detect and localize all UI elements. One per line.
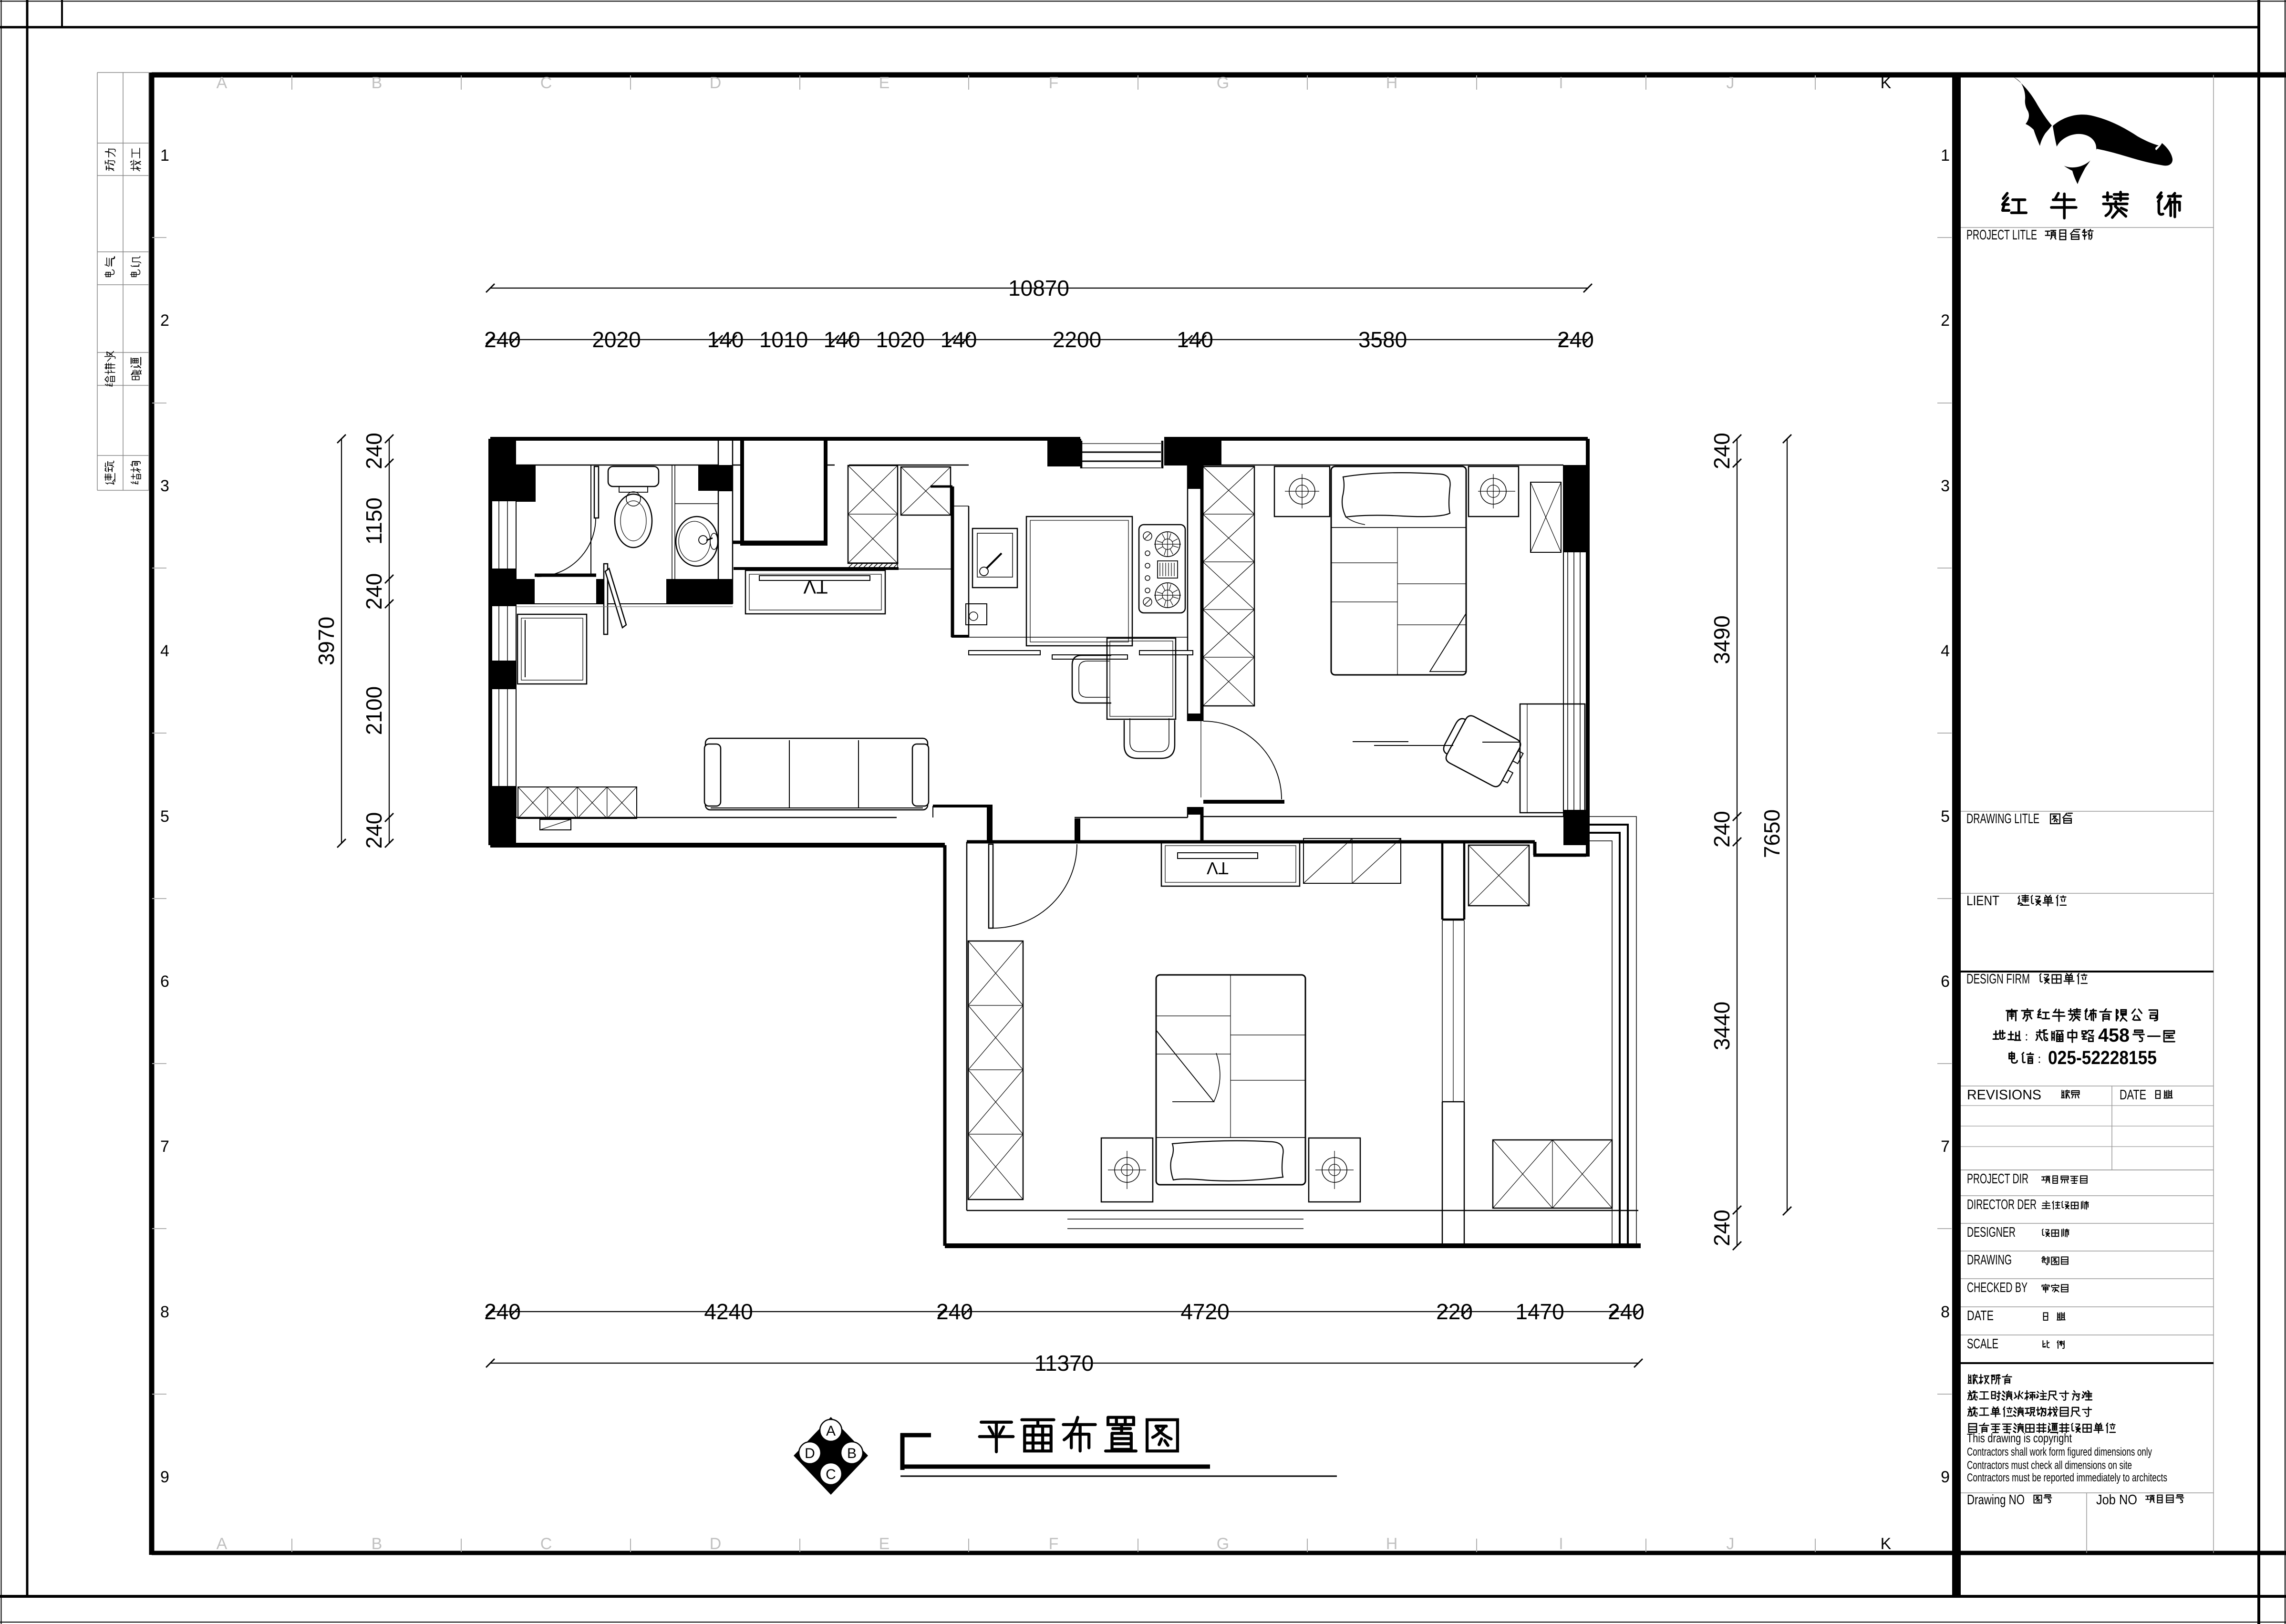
- svg-text:8: 8: [1941, 1303, 1950, 1321]
- svg-text:H: H: [1386, 74, 1398, 92]
- svg-text:A: A: [217, 1535, 228, 1553]
- svg-text:3490: 3490: [1709, 615, 1734, 664]
- svg-text:This drawing is copyright: This drawing is copyright: [1967, 1431, 2072, 1445]
- svg-text:B: B: [372, 1535, 383, 1553]
- svg-text:3: 3: [1941, 477, 1950, 495]
- svg-text:J: J: [1727, 1535, 1735, 1553]
- svg-text:1470: 1470: [1515, 1299, 1564, 1324]
- svg-text:3970: 3970: [314, 617, 339, 665]
- svg-text:7: 7: [1941, 1138, 1950, 1156]
- svg-text:6: 6: [160, 972, 169, 991]
- svg-text:F: F: [1049, 74, 1059, 92]
- svg-text:7: 7: [160, 1138, 169, 1156]
- svg-text:CHECKED BY: CHECKED BY: [1967, 1280, 2027, 1295]
- svg-text:5: 5: [1941, 807, 1950, 826]
- svg-text:SCALE: SCALE: [1967, 1336, 1998, 1352]
- svg-text:240: 240: [362, 433, 386, 469]
- svg-text:B: B: [847, 1446, 857, 1461]
- svg-text:2: 2: [160, 311, 169, 330]
- svg-text:2200: 2200: [1053, 327, 1101, 352]
- svg-text:240: 240: [484, 327, 521, 352]
- svg-text:D: D: [710, 74, 722, 92]
- svg-text:1010: 1010: [759, 327, 808, 352]
- svg-text:240: 240: [362, 573, 386, 610]
- svg-text:J: J: [1727, 74, 1735, 92]
- svg-text:G: G: [1217, 74, 1229, 92]
- svg-text:I: I: [1559, 74, 1563, 92]
- svg-text:DATE: DATE: [1967, 1308, 1994, 1324]
- svg-text:H: H: [1386, 1535, 1398, 1553]
- svg-text:F: F: [1049, 1535, 1059, 1553]
- svg-text:G: G: [1217, 1535, 1229, 1553]
- svg-text:Job NO: Job NO: [2096, 1492, 2137, 1508]
- svg-text:240: 240: [484, 1299, 521, 1324]
- svg-text:240: 240: [936, 1299, 973, 1324]
- svg-text:D: D: [805, 1446, 815, 1461]
- svg-text:DRAWING: DRAWING: [1967, 1252, 2012, 1268]
- svg-text:5: 5: [160, 807, 169, 826]
- svg-text:A: A: [217, 74, 228, 92]
- svg-text:LIENT: LIENT: [1966, 893, 1999, 909]
- svg-text:140: 140: [941, 327, 977, 352]
- svg-text:DATE: DATE: [2120, 1087, 2146, 1103]
- svg-text:B: B: [372, 74, 383, 92]
- svg-text:4: 4: [1941, 642, 1950, 660]
- svg-text:7650: 7650: [1759, 809, 1784, 858]
- svg-text:Contractors must be reported i: Contractors must be reported immediately…: [1967, 1471, 2167, 1484]
- svg-text:Contractors must check all dim: Contractors must check all dimensions on…: [1967, 1459, 2132, 1472]
- svg-text:D: D: [710, 1535, 722, 1553]
- svg-text:025-52228155: 025-52228155: [2048, 1047, 2157, 1068]
- svg-text:140: 140: [707, 327, 744, 352]
- svg-text:A: A: [826, 1423, 836, 1439]
- svg-text:E: E: [879, 1535, 890, 1553]
- svg-text:TV: TV: [803, 576, 828, 597]
- svg-text:9: 9: [1941, 1468, 1950, 1486]
- svg-text:11370: 11370: [1034, 1351, 1094, 1376]
- svg-text:DIRECTOR DER: DIRECTOR DER: [1967, 1197, 2037, 1212]
- svg-text:8: 8: [160, 1303, 169, 1321]
- svg-text:240: 240: [362, 812, 386, 849]
- svg-text:C: C: [826, 1467, 836, 1482]
- svg-text:DESIGN FIRM: DESIGN FIRM: [1966, 972, 2030, 987]
- svg-text:220: 220: [1436, 1299, 1473, 1324]
- svg-text:2: 2: [1941, 311, 1950, 330]
- svg-text:6: 6: [1941, 972, 1950, 991]
- svg-text:C: C: [540, 74, 552, 92]
- svg-text:I: I: [1559, 1535, 1563, 1553]
- svg-text:240: 240: [1557, 327, 1594, 352]
- svg-text:240: 240: [1709, 433, 1734, 469]
- svg-text:240: 240: [1709, 811, 1734, 848]
- svg-text:4: 4: [160, 642, 169, 660]
- svg-text:DRAWING LITLE: DRAWING LITLE: [1966, 811, 2039, 827]
- svg-text:3580: 3580: [1358, 327, 1407, 352]
- svg-text:PROJECT LITLE: PROJECT LITLE: [1966, 228, 2037, 243]
- svg-text:458: 458: [2098, 1025, 2130, 1046]
- svg-text:1020: 1020: [876, 327, 924, 352]
- svg-text:Drawing NO: Drawing NO: [1967, 1492, 2025, 1508]
- svg-text:TV: TV: [1207, 859, 1229, 878]
- svg-text:10870: 10870: [1008, 276, 1069, 300]
- svg-text:K: K: [1881, 1535, 1892, 1553]
- svg-text:PROJECT DIR: PROJECT DIR: [1967, 1171, 2028, 1187]
- svg-text:1150: 1150: [362, 497, 386, 545]
- svg-text:4720: 4720: [1180, 1299, 1229, 1324]
- svg-text:240: 240: [1608, 1299, 1645, 1324]
- svg-text:3: 3: [160, 477, 169, 495]
- svg-text:1: 1: [160, 146, 169, 165]
- svg-text:2020: 2020: [592, 327, 641, 352]
- svg-text:K: K: [1881, 74, 1892, 92]
- svg-text:140: 140: [1177, 327, 1213, 352]
- svg-text:1: 1: [1941, 146, 1950, 165]
- svg-text:E: E: [879, 74, 890, 92]
- svg-text:Contractors shall work form fi: Contractors shall work form figured dime…: [1967, 1446, 2152, 1458]
- svg-text:C: C: [540, 1535, 552, 1553]
- svg-text:2100: 2100: [362, 686, 386, 735]
- svg-text:140: 140: [824, 327, 860, 352]
- svg-text:4240: 4240: [704, 1299, 753, 1324]
- svg-text:REVISIONS: REVISIONS: [1967, 1087, 2041, 1103]
- svg-text:240: 240: [1709, 1210, 1734, 1246]
- svg-text:3440: 3440: [1709, 1002, 1734, 1050]
- svg-text:DESIGNER: DESIGNER: [1967, 1225, 2016, 1240]
- svg-text:9: 9: [160, 1468, 169, 1486]
